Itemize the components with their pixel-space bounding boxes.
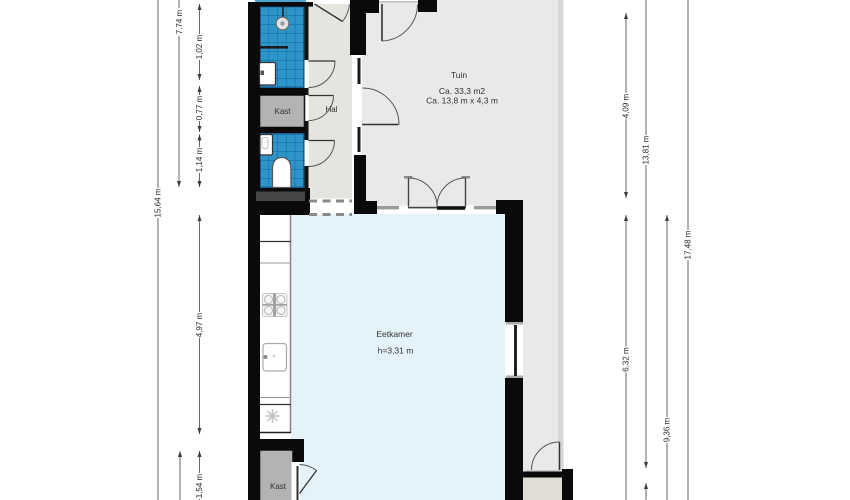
svg-text:13,81 m: 13,81 m (642, 135, 651, 164)
svg-text:4,09 m: 4,09 m (622, 93, 631, 118)
svg-text:Ca. 33,3 m2: Ca. 33,3 m2 (439, 86, 486, 96)
svg-text:Ca. 13,8 m x 4,3 m: Ca. 13,8 m x 4,3 m (426, 96, 498, 106)
svg-text:1,14 m: 1,14 m (195, 147, 204, 172)
svg-text:7,74 m: 7,74 m (175, 9, 184, 34)
svg-text:1,54 m: 1,54 m (195, 473, 204, 498)
svg-text:9,36 m: 9,36 m (663, 417, 672, 442)
svg-text:Hal: Hal (325, 105, 337, 114)
svg-text:h=3,31 m: h=3,31 m (378, 346, 414, 356)
svg-text:0,77 m: 0,77 m (195, 95, 204, 120)
svg-text:17,48 m: 17,48 m (684, 230, 693, 259)
svg-text:Kast: Kast (274, 107, 291, 116)
svg-text:Eetkamer: Eetkamer (376, 329, 413, 339)
svg-text:6,32 m: 6,32 m (622, 347, 631, 372)
svg-text:4,97 m: 4,97 m (195, 312, 204, 337)
svg-text:Tuin: Tuin (451, 70, 467, 80)
svg-text:15,64 m: 15,64 m (154, 188, 163, 217)
svg-text:1,02 m: 1,02 m (195, 34, 204, 59)
svg-text:Kast: Kast (270, 482, 287, 491)
